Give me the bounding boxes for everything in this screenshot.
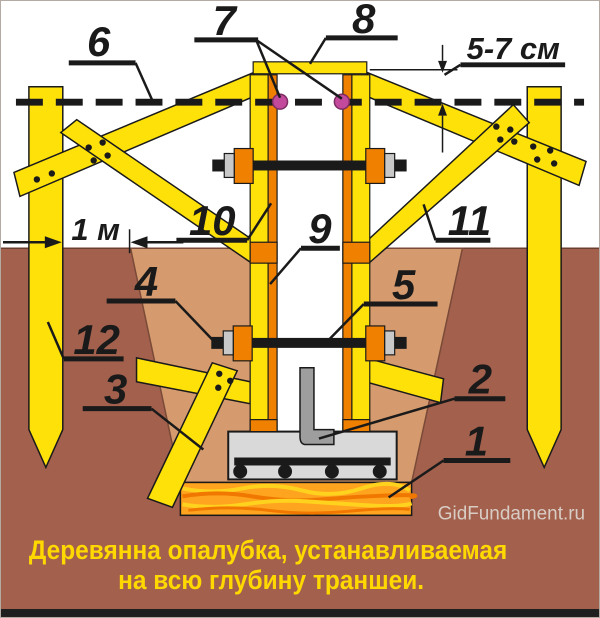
waler-right xyxy=(343,242,370,263)
callout-4: 4 xyxy=(134,258,158,305)
sand-bed xyxy=(180,482,415,515)
callout-11: 11 xyxy=(448,197,491,244)
callout-8: 8 xyxy=(352,1,376,42)
callout-7: 7 xyxy=(213,1,238,44)
callout-2: 2 xyxy=(468,356,492,403)
stake-left xyxy=(29,87,63,468)
callout-10: 10 xyxy=(189,197,236,244)
diagram-canvas: 6 7 8 10 9 11 12 3 4 5 2 1 5-7 см 1 м Gi… xyxy=(1,1,599,617)
caption-line-2: на всю глубину траншеи. xyxy=(118,565,424,595)
callout-5: 5 xyxy=(392,261,416,308)
callout-3: 3 xyxy=(104,366,127,413)
dimension-label-1m: 1 м xyxy=(71,212,120,247)
callout-6: 6 xyxy=(87,18,111,65)
callout-1: 1 xyxy=(465,418,488,465)
waler-left xyxy=(250,242,277,263)
caption-line-1: Деревянна опалубка, устанавливаемая xyxy=(29,535,507,565)
rebar-bar xyxy=(234,458,390,466)
foot-block-left xyxy=(250,420,277,432)
bottom-border-band xyxy=(1,609,599,617)
dimension-label-5-7cm: 5-7 см xyxy=(467,31,560,66)
callout-12: 12 xyxy=(73,316,120,363)
formwork-diagram: 6 7 8 10 9 11 12 3 4 5 2 1 5-7 см 1 м Gi… xyxy=(0,0,600,618)
callout-9: 9 xyxy=(308,205,332,252)
watermark-text: GidFundament.ru xyxy=(438,503,585,524)
